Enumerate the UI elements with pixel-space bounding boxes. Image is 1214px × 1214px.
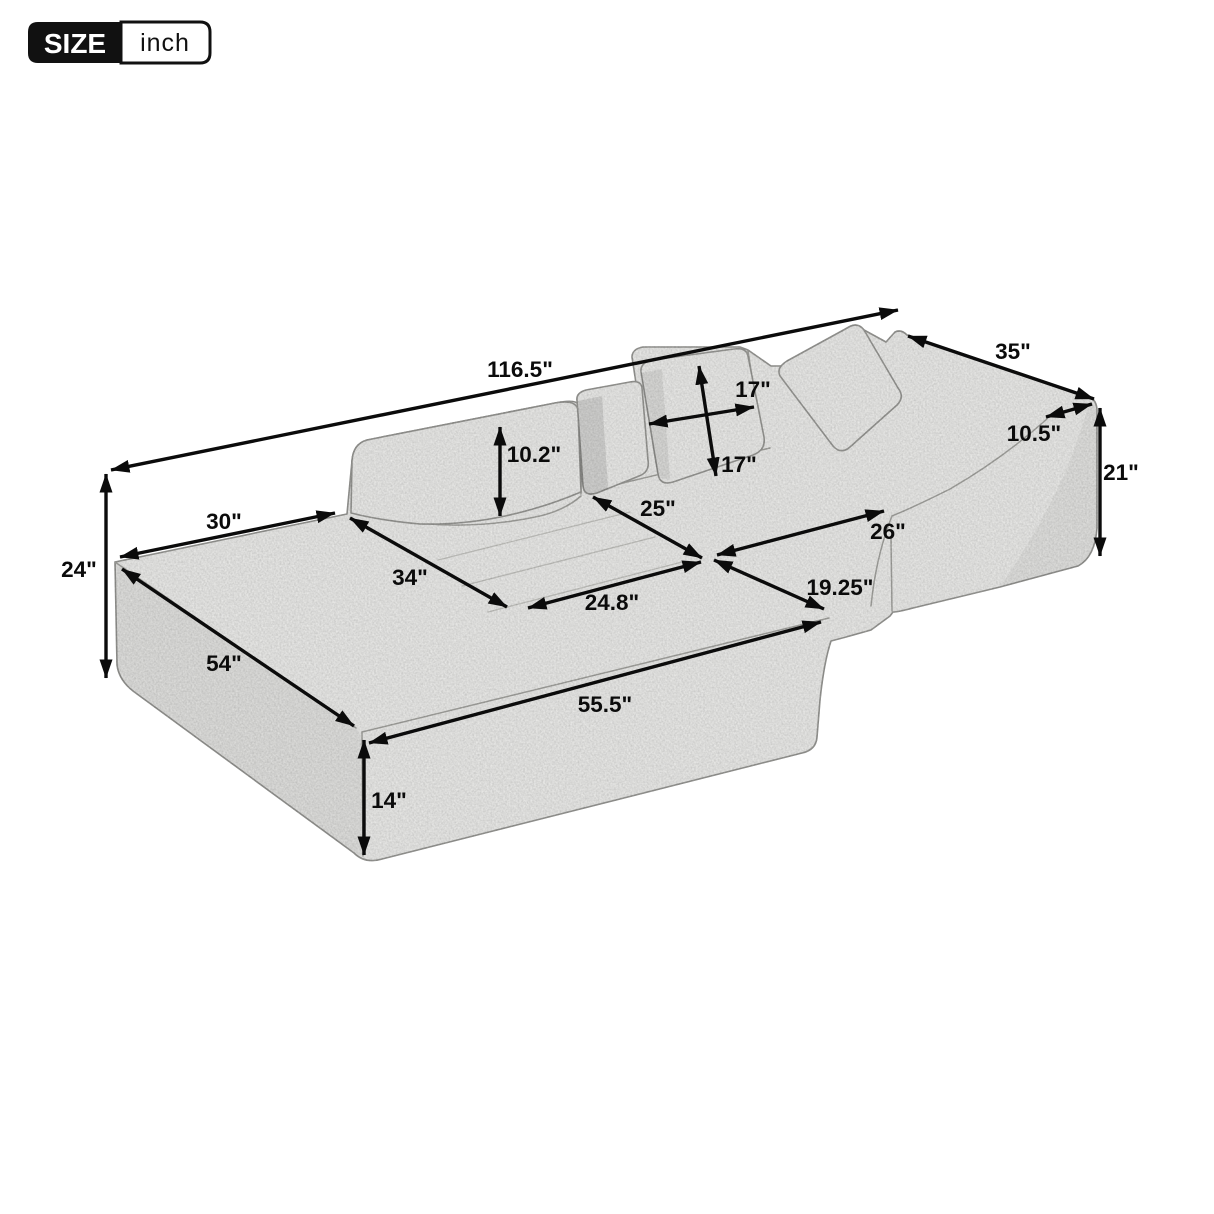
- dim-label-backrest-height: 10.2": [507, 442, 561, 467]
- dim-label-pillow-height: 17": [721, 452, 757, 477]
- diagram-canvas: 116.5" 35" 10.5" 21" 17" 17" 10.2" 25" 2…: [0, 0, 1214, 1214]
- dim-label-chaise-back-width: 30": [206, 509, 242, 534]
- dim-label-left-seat-width: 25": [640, 496, 676, 521]
- dim-label-right-height: 21": [1103, 460, 1139, 485]
- dim-label-base-height: 14": [371, 788, 407, 813]
- badge-size-label: SIZE: [44, 28, 106, 59]
- module-join-seam: [891, 538, 892, 611]
- dim-label-total-length: 116.5": [487, 357, 553, 382]
- badge-unit-label: inch: [140, 29, 190, 57]
- size-unit-badge: SIZE inch: [28, 22, 210, 63]
- dim-label-pillow-width: 17": [735, 377, 771, 402]
- dim-label-chaise-side-depth: 54": [206, 651, 242, 676]
- dim-label-left-height: 24": [61, 557, 97, 582]
- dim-label-right-seat-depth: 19.25": [807, 575, 874, 600]
- dim-label-right-seat-width: 26": [870, 519, 906, 544]
- dim-label-right-section-width: 35": [995, 339, 1031, 364]
- dim-label-chaise-length: 34": [392, 565, 428, 590]
- dim-label-left-seat-depth: 24.8": [585, 590, 639, 615]
- sofa-dimension-diagram: 116.5" 35" 10.5" 21" 17" 17" 10.2" 25" 2…: [0, 0, 1214, 1214]
- dim-label-arm-depth: 10.5": [1007, 421, 1061, 446]
- dim-label-front-length: 55.5": [578, 692, 632, 717]
